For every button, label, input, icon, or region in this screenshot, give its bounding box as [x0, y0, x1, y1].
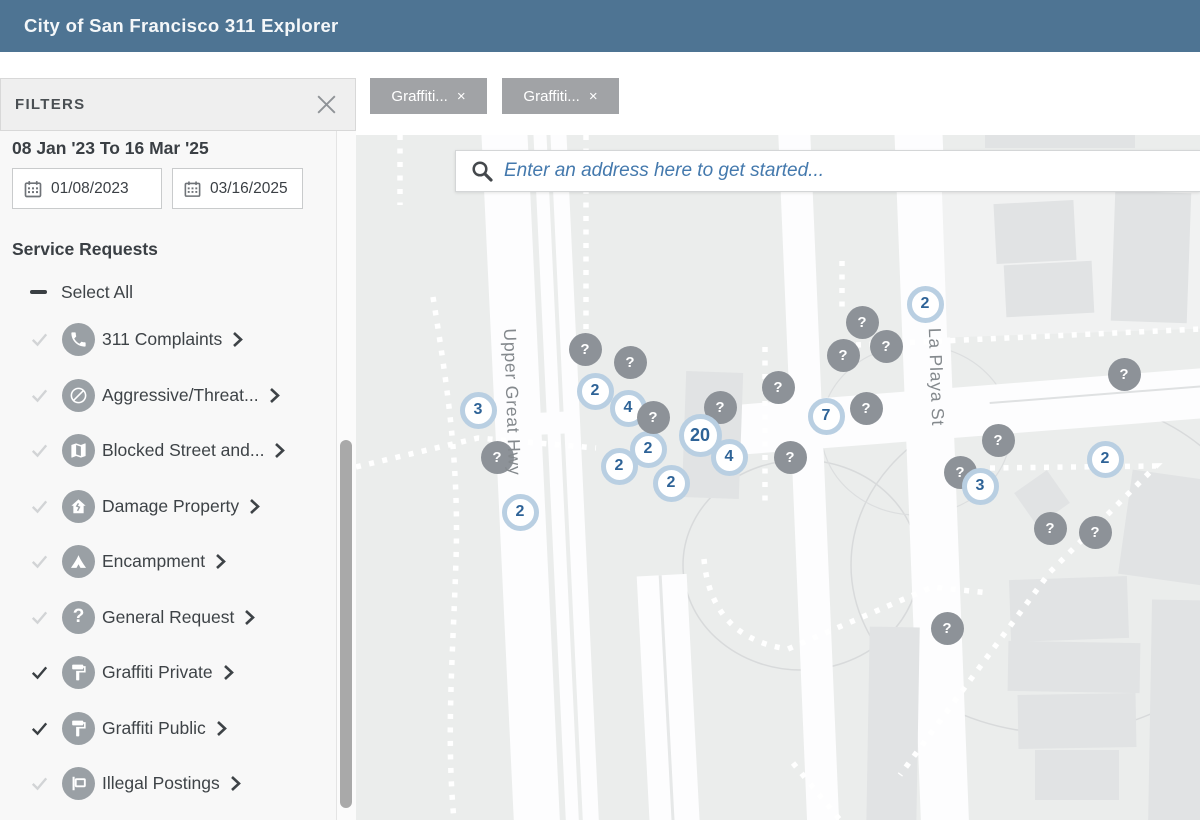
filter-chip-label: Graffiti...	[391, 88, 447, 105]
question-marker[interactable]: ?	[846, 306, 879, 339]
question-marker[interactable]: ?	[1108, 358, 1141, 391]
checkmark-icon[interactable]	[30, 552, 49, 571]
address-search-input[interactable]	[504, 160, 1200, 182]
question-marker[interactable]: ?	[1034, 512, 1067, 545]
service-request-label: Illegal Postings	[102, 773, 220, 794]
date-range-label: 08 Jan '23 To 16 Mar '25	[12, 138, 336, 159]
question-marker[interactable]: ?	[614, 346, 647, 379]
app-title: City of San Francisco 311 Explorer	[24, 15, 339, 37]
service-request-row-311-complaints[interactable]: 311 Complaints	[12, 320, 336, 360]
calendar-icon	[183, 179, 202, 199]
service-request-label: General Request	[102, 607, 234, 628]
chevron-right-icon[interactable]	[269, 387, 280, 404]
scrollbar-track[interactable]	[336, 131, 356, 820]
question-marker[interactable]: ?	[569, 333, 602, 366]
active-filter-chips: Graffiti... × Graffiti... ×	[370, 78, 619, 114]
question-marker[interactable]: ?	[827, 339, 860, 372]
question-marker[interactable]: ?	[774, 441, 807, 474]
service-request-row-damage-property[interactable]: Damage Property	[12, 486, 336, 526]
filter-chip-graffiti-public[interactable]: Graffiti... ×	[502, 78, 619, 114]
service-request-row-general-request[interactable]: ? General Request	[12, 597, 336, 637]
tent-icon	[69, 552, 88, 571]
chevron-right-icon[interactable]	[244, 609, 255, 626]
question-marker[interactable]: ?	[637, 401, 670, 434]
map-icon	[69, 441, 88, 460]
filter-chip-label: Graffiti...	[523, 88, 579, 105]
filters-panel-header: FILTERS	[0, 78, 356, 131]
date-to-field[interactable]	[172, 168, 303, 209]
paint-roller-icon	[69, 663, 88, 682]
filters-title: FILTERS	[15, 96, 85, 113]
calendar-icon	[23, 179, 43, 199]
service-request-label: Graffiti Private	[102, 662, 213, 683]
date-range-inputs	[12, 168, 336, 209]
checkmark-icon[interactable]	[30, 441, 49, 460]
damaged-house-icon	[69, 497, 88, 516]
map-canvas[interactable]: Upper Great Hwy La Playa St ????????????…	[356, 135, 1200, 820]
sign-icon	[69, 774, 88, 793]
chevron-right-icon[interactable]	[249, 498, 260, 515]
date-from-field[interactable]	[12, 168, 162, 209]
chevron-right-icon[interactable]	[223, 664, 234, 681]
chevron-right-icon[interactable]	[230, 775, 241, 792]
question-marker[interactable]: ?	[982, 424, 1015, 457]
cluster-marker[interactable]: 2	[907, 286, 944, 323]
cluster-marker[interactable]: 2	[601, 448, 638, 485]
checkmark-icon[interactable]	[30, 663, 49, 682]
question-marker[interactable]: ?	[870, 330, 903, 363]
question-marker[interactable]: ?	[850, 392, 883, 425]
service-request-row-blocked-street[interactable]: Blocked Street and...	[12, 431, 336, 471]
filter-chip-graffiti-private[interactable]: Graffiti... ×	[370, 78, 487, 114]
phone-icon	[69, 330, 88, 349]
chip-close-icon[interactable]: ×	[457, 88, 466, 105]
indeterminate-checkbox-icon	[30, 290, 47, 294]
chevron-right-icon[interactable]	[232, 331, 243, 348]
select-all-label: Select All	[61, 282, 133, 303]
date-to-input[interactable]	[210, 180, 302, 198]
cluster-marker[interactable]: 3	[460, 392, 497, 429]
chevron-right-icon[interactable]	[215, 553, 226, 570]
checkmark-icon[interactable]	[30, 608, 49, 627]
question-marker[interactable]: ?	[1079, 516, 1112, 549]
service-requests-title: Service Requests	[12, 239, 336, 260]
address-search	[455, 150, 1200, 192]
service-request-row-illegal-postings[interactable]: Illegal Postings	[12, 764, 336, 804]
service-request-row-encampment[interactable]: Encampment	[12, 542, 336, 582]
block-icon	[69, 386, 88, 405]
paint-roller-icon	[69, 719, 88, 738]
chip-close-icon[interactable]: ×	[589, 88, 598, 105]
cluster-marker[interactable]: 2	[653, 465, 690, 502]
cluster-marker[interactable]: 4	[711, 439, 748, 476]
checkmark-icon[interactable]	[30, 386, 49, 405]
cluster-marker[interactable]: 7	[808, 398, 845, 435]
select-all-toggle[interactable]: Select All	[30, 280, 336, 304]
cluster-marker[interactable]: 2	[502, 494, 539, 531]
filters-panel: FILTERS 08 Jan '23 To 16 Mar '25	[0, 78, 356, 820]
cluster-marker[interactable]: 3	[962, 468, 999, 505]
checkmark-icon[interactable]	[30, 774, 49, 793]
chevron-right-icon[interactable]	[216, 720, 227, 737]
service-request-label: Graffiti Public	[102, 718, 206, 739]
checkmark-icon[interactable]	[30, 719, 49, 738]
service-request-row-graffiti-private[interactable]: Graffiti Private	[12, 653, 336, 693]
service-request-row-graffiti-public[interactable]: Graffiti Public	[12, 708, 336, 748]
checkmark-icon[interactable]	[30, 330, 49, 349]
street-label-la-playa: La Playa St	[924, 328, 948, 427]
close-icon[interactable]	[314, 92, 339, 117]
map-dashed-footpaths	[356, 135, 1200, 820]
question-marker[interactable]: ?	[762, 371, 795, 404]
app-header: City of San Francisco 311 Explorer	[0, 0, 1200, 52]
service-request-label: Blocked Street and...	[102, 440, 264, 461]
search-icon	[470, 159, 494, 183]
question-marker[interactable]: ?	[931, 612, 964, 645]
service-request-label: Damage Property	[102, 496, 239, 517]
service-request-label: 311 Complaints	[102, 329, 222, 350]
question-icon: ?	[73, 606, 85, 628]
service-request-row-aggressive[interactable]: Aggressive/Threat...	[12, 375, 336, 415]
scrollbar-thumb[interactable]	[340, 440, 352, 808]
cluster-marker[interactable]: 2	[577, 373, 614, 410]
service-request-label: Aggressive/Threat...	[102, 385, 259, 406]
checkmark-icon[interactable]	[30, 497, 49, 516]
chevron-right-icon[interactable]	[274, 442, 285, 459]
service-request-label: Encampment	[102, 551, 205, 572]
cluster-marker[interactable]: 2	[1087, 441, 1124, 478]
date-from-input[interactable]	[51, 180, 143, 198]
